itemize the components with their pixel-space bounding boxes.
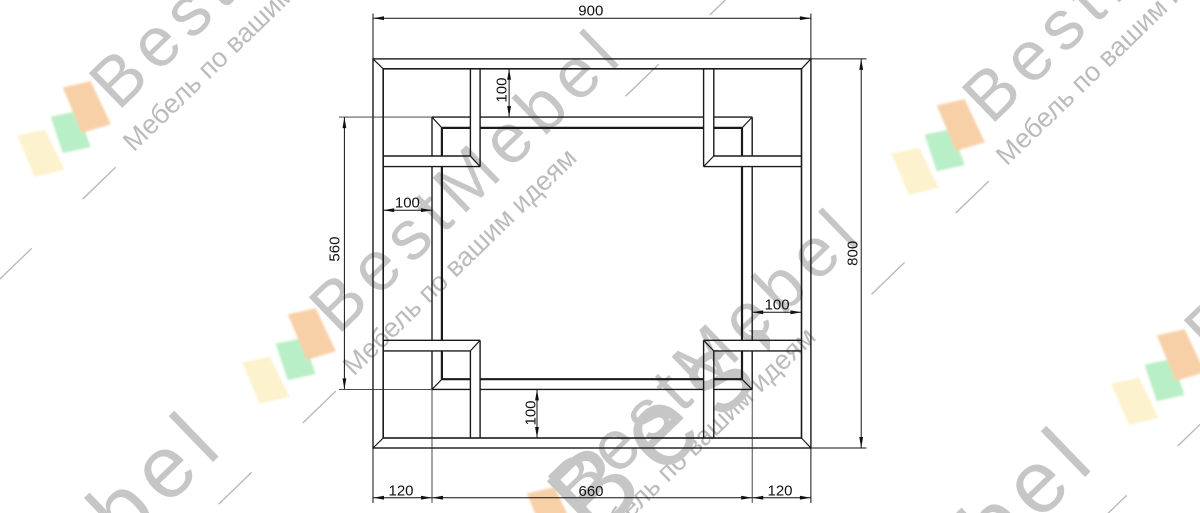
svg-text:100: 100 bbox=[494, 78, 511, 103]
svg-text:120: 120 bbox=[767, 482, 792, 499]
svg-text:BestMebel: BestMebel bbox=[0, 388, 243, 513]
svg-text:BestMebel: BestMebel bbox=[294, 11, 638, 347]
svg-text:100: 100 bbox=[522, 400, 539, 425]
svg-text:560: 560 bbox=[327, 237, 344, 262]
svg-text:100: 100 bbox=[765, 297, 790, 314]
svg-text:900: 900 bbox=[578, 3, 603, 20]
svg-text:120: 120 bbox=[388, 482, 413, 499]
svg-text:660: 660 bbox=[578, 483, 603, 500]
svg-text:BestMebel: BestMebel bbox=[1169, 34, 1200, 370]
svg-text:100: 100 bbox=[395, 195, 420, 212]
svg-text:800: 800 bbox=[844, 241, 861, 266]
